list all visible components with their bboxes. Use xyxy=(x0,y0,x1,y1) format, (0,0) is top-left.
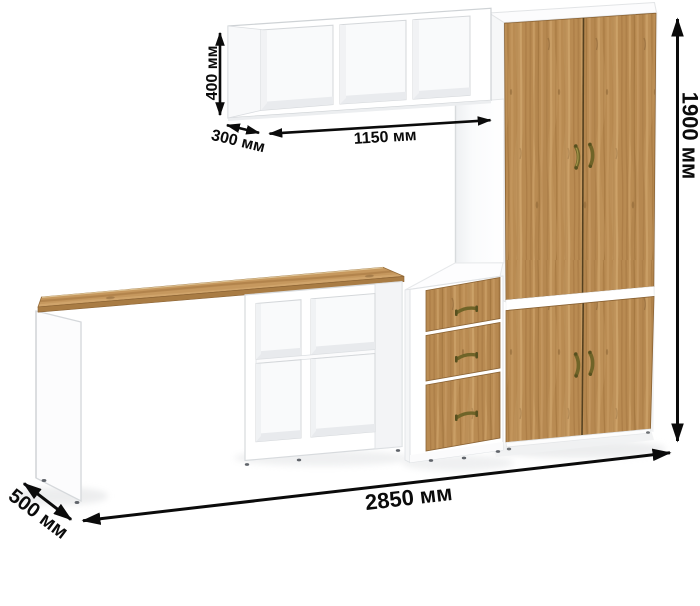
svg-text:400 мм: 400 мм xyxy=(204,46,221,101)
svg-text:1900 мм: 1900 мм xyxy=(678,92,700,180)
